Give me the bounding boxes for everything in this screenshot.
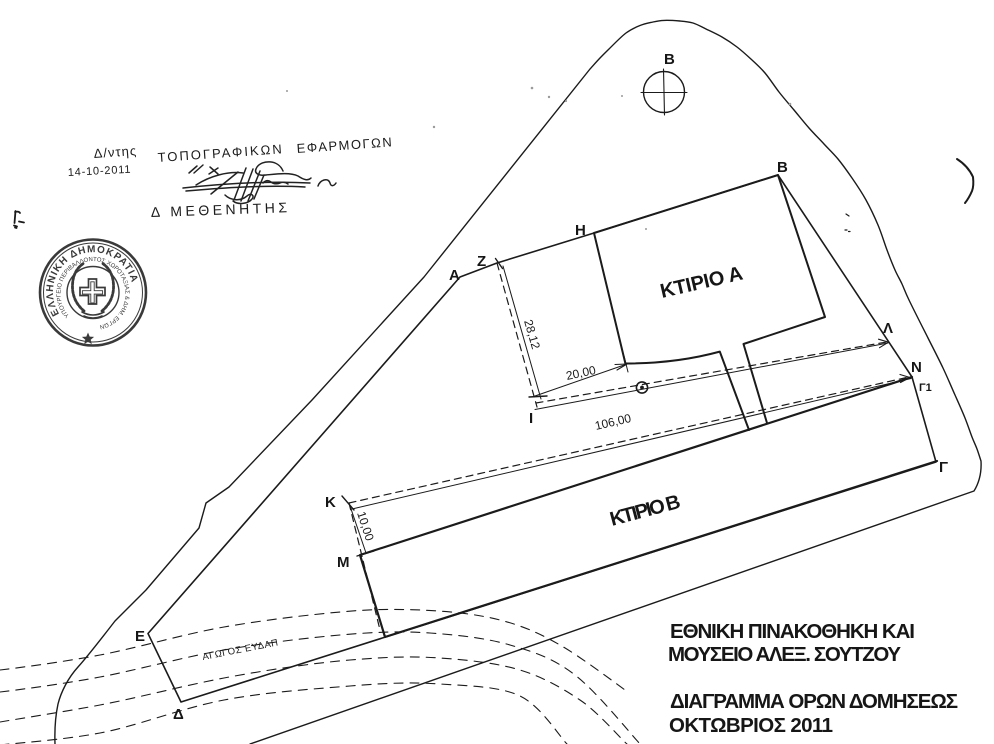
svg-text:A: A xyxy=(449,267,460,284)
svg-text:Z: Z xyxy=(477,253,486,270)
svg-text:K: K xyxy=(325,494,336,511)
svg-text:Δ/ντης: Δ/ντης xyxy=(93,143,137,161)
svg-text:ΕΦΑΡΜΟΓΩΝ: ΕΦΑΡΜΟΓΩΝ xyxy=(296,134,394,156)
svg-text:E: E xyxy=(135,628,145,645)
svg-text:B: B xyxy=(664,51,675,68)
svg-text:14-10-2011: 14-10-2011 xyxy=(68,164,132,179)
svg-text:ΑΓΩΓΟΣ ΕΥΔΑΠ: ΑΓΩΓΟΣ ΕΥΔΑΠ xyxy=(201,637,279,663)
svg-text:ΕΘΝΙΚΗ ΠΙΝΑΚΟΘΗΚΗ ΚΑΙ: ΕΘΝΙΚΗ ΠΙΝΑΚΟΘΗΚΗ ΚΑΙ xyxy=(670,620,915,643)
svg-text:Γ: Γ xyxy=(939,459,948,476)
svg-text:20,00: 20,00 xyxy=(565,363,598,383)
svg-text:Γ1: Γ1 xyxy=(919,382,932,394)
svg-text:M: M xyxy=(337,554,350,571)
svg-text:106,00: 106,00 xyxy=(594,411,633,433)
svg-text:ΜΟΥΣΕΙΟ ΑΛΕΞ. ΣΟΥΤΖΟΥ: ΜΟΥΣΕΙΟ ΑΛΕΞ. ΣΟΥΤΖΟΥ xyxy=(668,643,901,666)
svg-text:28,12: 28,12 xyxy=(521,318,543,351)
svg-text:ΚΤΙΡΙΟ Β: ΚΤΙΡΙΟ Β xyxy=(608,491,683,531)
svg-text:ΟΚΤΩΒΡΙΟΣ 2011: ΟΚΤΩΒΡΙΟΣ 2011 xyxy=(669,714,833,737)
svg-text:ΚΤΙΡΙΟ Α: ΚΤΙΡΙΟ Α xyxy=(658,263,745,303)
svg-text:ΔΙΑΓΡΑΜΜΑ ΟΡΩΝ ΔΟΜΗΣΕΩΣ: ΔΙΑΓΡΑΜΜΑ ΟΡΩΝ ΔΟΜΗΣΕΩΣ xyxy=(670,690,958,713)
svg-text:Δ: Δ xyxy=(173,706,184,723)
svg-text:B: B xyxy=(777,159,788,176)
svg-text:Δ ΜΕΘΕΝΗΤΗΣ: Δ ΜΕΘΕΝΗΤΗΣ xyxy=(151,199,291,220)
svg-text:N: N xyxy=(911,359,922,376)
svg-text:I: I xyxy=(529,410,533,427)
svg-text:Λ: Λ xyxy=(883,320,893,337)
svg-text:H: H xyxy=(575,222,586,239)
